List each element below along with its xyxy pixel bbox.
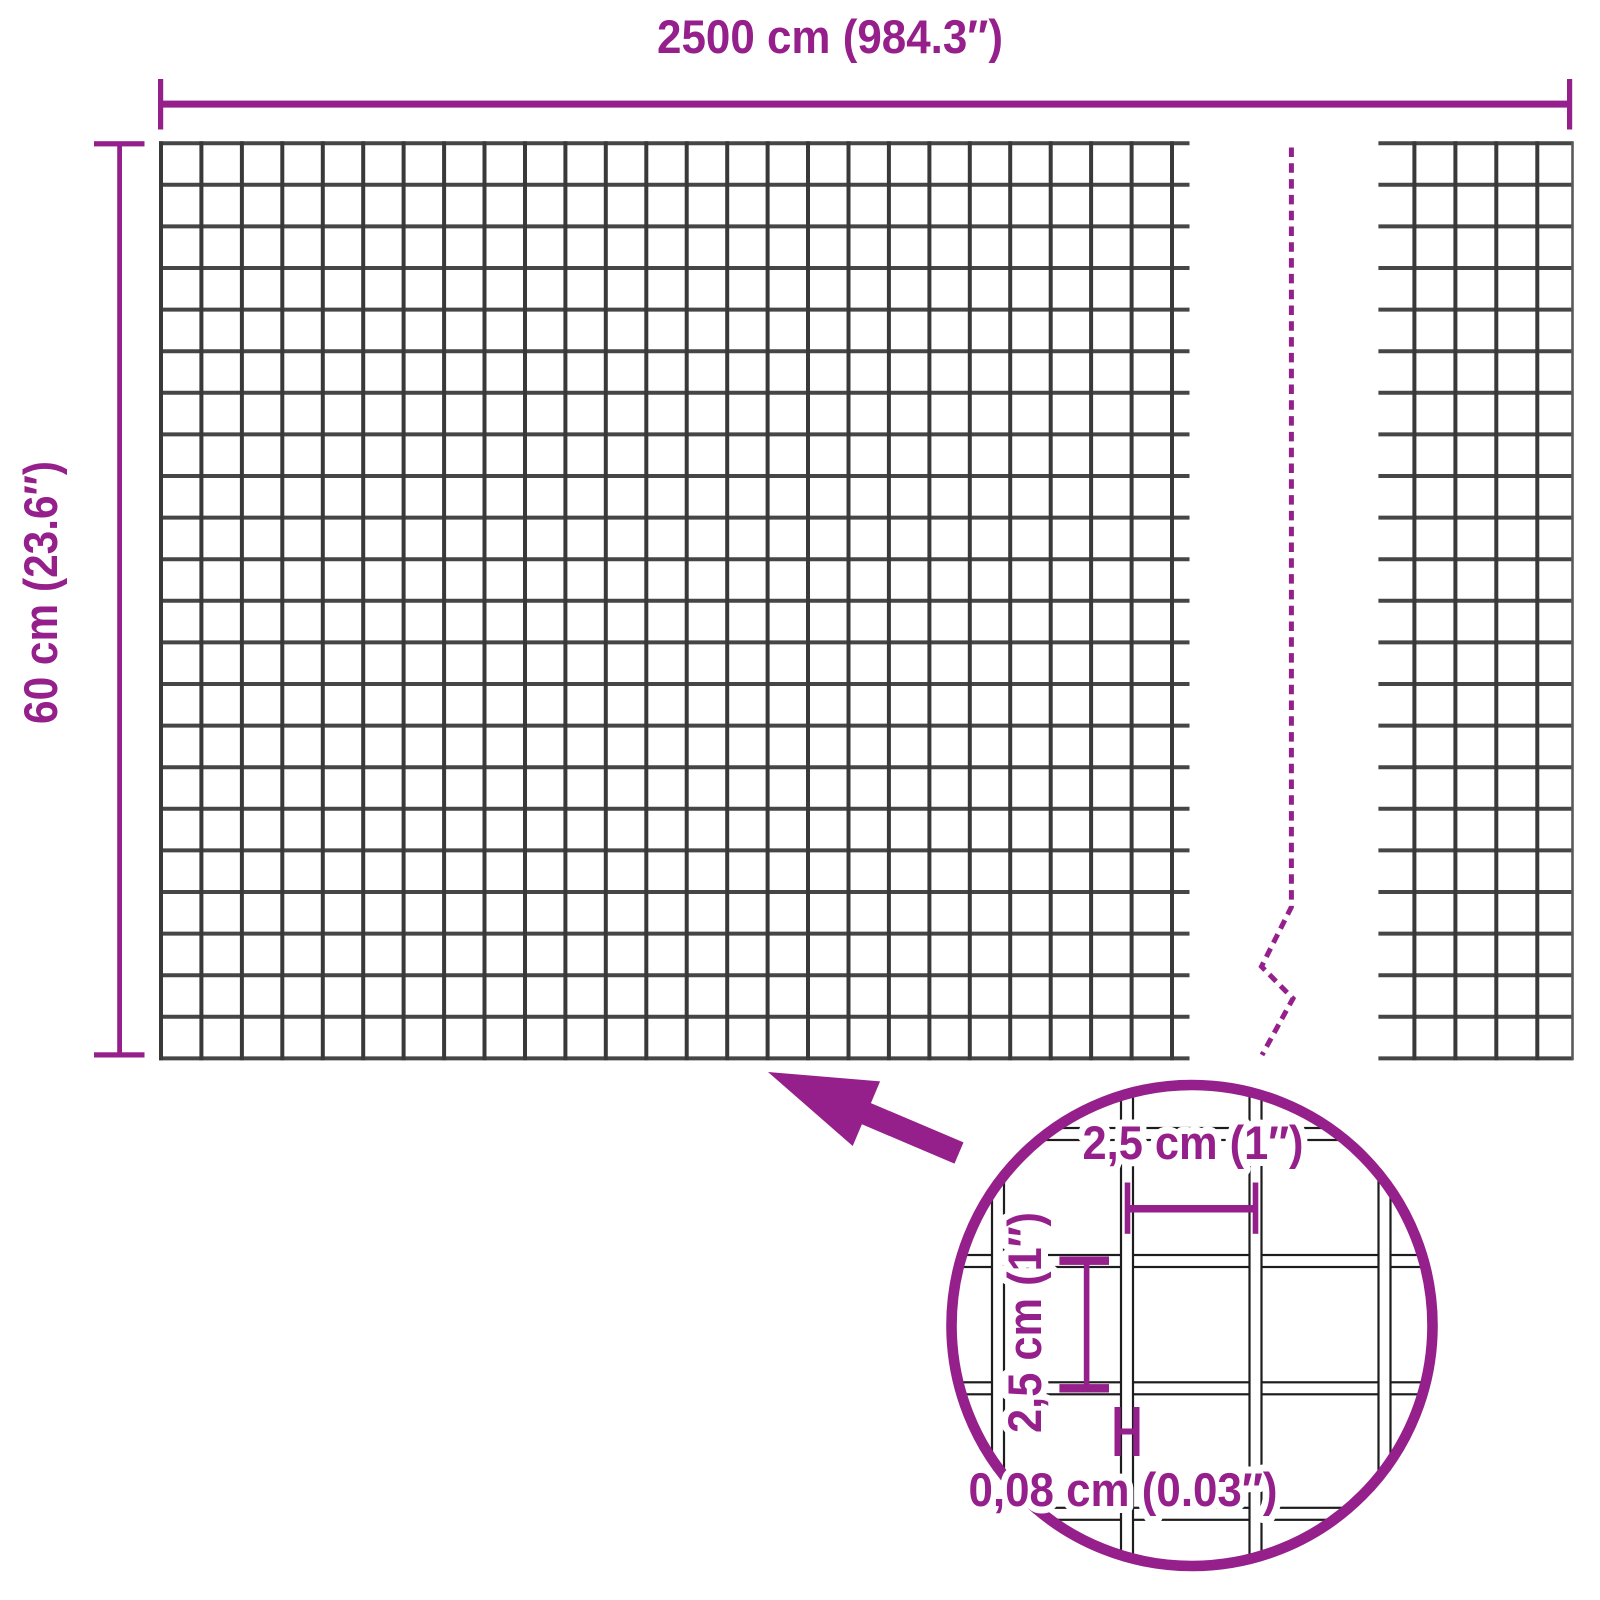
svg-text:2,5 cm (1″): 2,5 cm (1″) [998, 1212, 1051, 1433]
svg-text:2,5 cm (1″): 2,5 cm (1″) [1083, 1116, 1304, 1169]
svg-text:60 cm (23.6″): 60 cm (23.6″) [14, 461, 67, 724]
svg-text:0,08 cm (0.03″): 0,08 cm (0.03″) [969, 1463, 1278, 1516]
svg-text:2500 cm (984.3″): 2500 cm (984.3″) [657, 10, 1003, 63]
